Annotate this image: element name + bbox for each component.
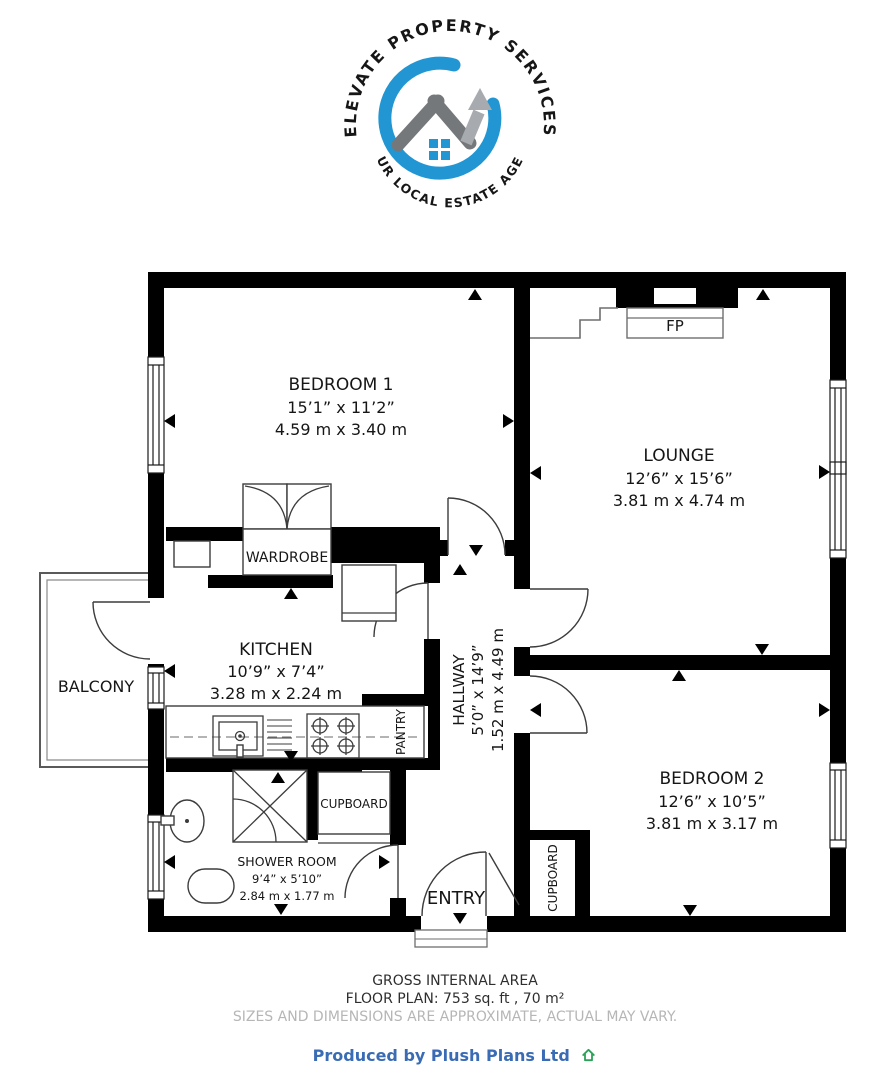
bedroom2-metric: 3.81 m x 3.17 m (646, 814, 778, 833)
credit-link[interactable]: Produced by Plush Plans Ltd (313, 1046, 570, 1065)
room-label-shower-room: SHOWER ROOM 9’4” x 5’10” 2.84 m x 1.77 m (237, 854, 336, 903)
disclaimer-text: SIZES AND DIMENSIONS ARE APPROXIMATE, AC… (25, 1008, 885, 1026)
kitchen-name: KITCHEN (239, 640, 313, 660)
shower-room-metric: 2.84 m x 1.77 m (239, 889, 334, 903)
lounge-metric: 3.81 m x 4.74 m (613, 491, 745, 510)
kitchen-metric: 3.28 m x 2.24 m (210, 684, 342, 703)
pantry-label: PANTRY (394, 708, 408, 755)
floor-plan: BEDROOM 1 15’1” x 11’2” 4.59 m x 3.40 m … (0, 0, 885, 1080)
shower-room-door-icon (345, 845, 398, 898)
hallway-name: HALLWAY (450, 654, 468, 726)
hallway-metric: 1.52 m x 4.49 m (489, 628, 507, 752)
lounge-imperial: 12’6” x 15’6” (625, 469, 732, 488)
fireplace-label: FP (666, 317, 684, 335)
credit-line: Produced by Plush Plans Ltd (25, 1046, 885, 1065)
fireplace (530, 308, 723, 338)
kitchen-counter (166, 706, 424, 758)
shower-enclosure-icon (233, 770, 307, 842)
bedroom1-metric: 4.59 m x 3.40 m (275, 420, 407, 439)
hall-cupboard-label: CUPBOARD (546, 844, 560, 911)
shower-room-imperial: 9’4” x 5’10” (252, 872, 322, 886)
bedroom1-imperial: 15’1” x 11’2” (287, 398, 394, 417)
balcony-door-icon (93, 602, 150, 659)
basin-icon (161, 800, 204, 842)
entry-label: ENTRY (427, 888, 486, 909)
kitchen-recess (174, 541, 210, 567)
bedroom2-imperial: 12’6” x 10’5” (658, 792, 765, 811)
lounge-name: LOUNGE (643, 446, 714, 466)
house-icon (580, 1047, 597, 1063)
room-label-bedroom2: BEDROOM 2 12’6” x 10’5” 3.81 m x 3.17 m (646, 769, 778, 833)
floor-plan-area-detail: FLOOR PLAN: 753 sq. ft , 70 m² (25, 990, 885, 1008)
wardrobe-label: WARDROBE (246, 550, 328, 566)
footer: GROSS INTERNAL AREA FLOOR PLAN: 753 sq. … (25, 972, 885, 1065)
gross-internal-area-title: GROSS INTERNAL AREA (25, 972, 885, 990)
bedroom2-door-icon (530, 676, 587, 733)
shower-cupboard-label: CUPBOARD (320, 797, 387, 811)
toilet-icon (188, 869, 234, 903)
room-label-kitchen: KITCHEN 10’9” x 7’4” 3.28 m x 2.24 m (210, 640, 342, 703)
kitchen-imperial: 10’9” x 7’4” (227, 662, 324, 681)
bedroom1-name: BEDROOM 1 (289, 375, 394, 395)
hallway-imperial: 5’0” x 14’9” (469, 644, 487, 735)
room-label-hallway: HALLWAY 5’0” x 14’9” 1.52 m x 4.49 m (450, 628, 507, 752)
room-label-bedroom1: BEDROOM 1 15’1” x 11’2” 4.59 m x 3.40 m (275, 375, 407, 439)
entry-step (415, 930, 487, 947)
bedroom2-name: BEDROOM 2 (660, 769, 765, 789)
shower-room-name: SHOWER ROOM (237, 854, 336, 869)
lounge-door-icon (530, 589, 588, 647)
balcony-label: BALCONY (58, 677, 135, 696)
room-label-lounge: LOUNGE 12’6” x 15’6” 3.81 m x 4.74 m (613, 446, 745, 510)
